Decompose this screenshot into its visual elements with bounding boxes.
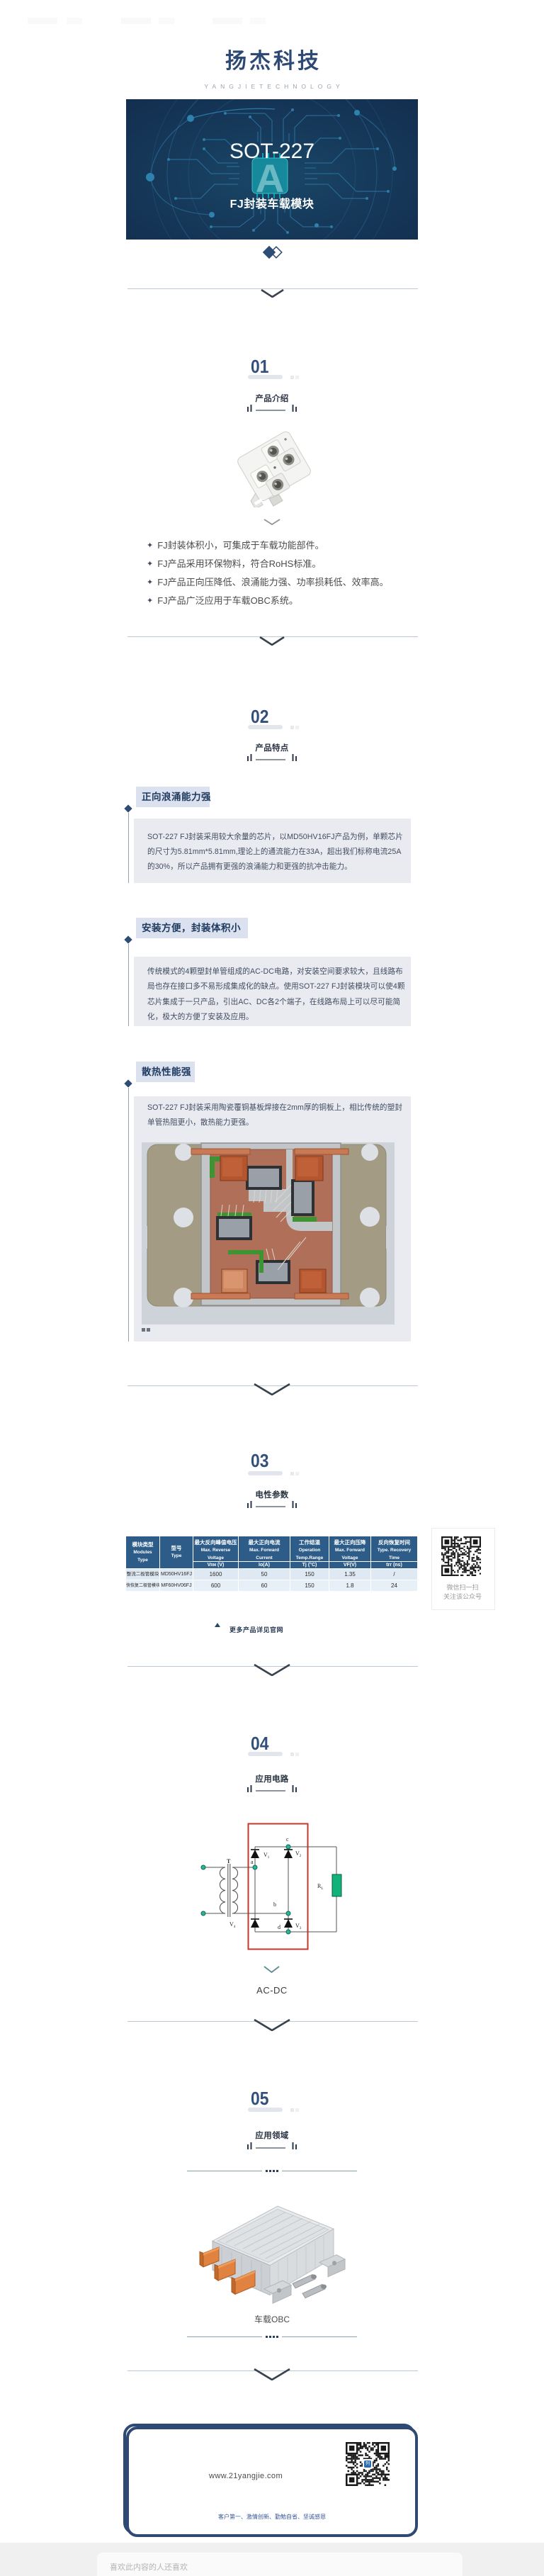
svg-text:T: T	[227, 1858, 231, 1864]
svg-text:FJ封装车载模块: FJ封装车载模块	[230, 197, 314, 210]
svg-text:b: b	[273, 1901, 276, 1908]
svg-text:a: a	[251, 1859, 254, 1865]
svg-text:RL: RL	[317, 1883, 323, 1891]
svg-text:V3: V3	[295, 1923, 302, 1930]
svg-text:SOT-227: SOT-227	[229, 140, 314, 163]
svg-text:V2: V2	[295, 1850, 302, 1858]
svg-text:d: d	[278, 1924, 280, 1930]
svg-text:V1: V1	[263, 1852, 270, 1860]
svg-text:V4: V4	[229, 1921, 236, 1929]
svg-text:c: c	[286, 1836, 289, 1843]
